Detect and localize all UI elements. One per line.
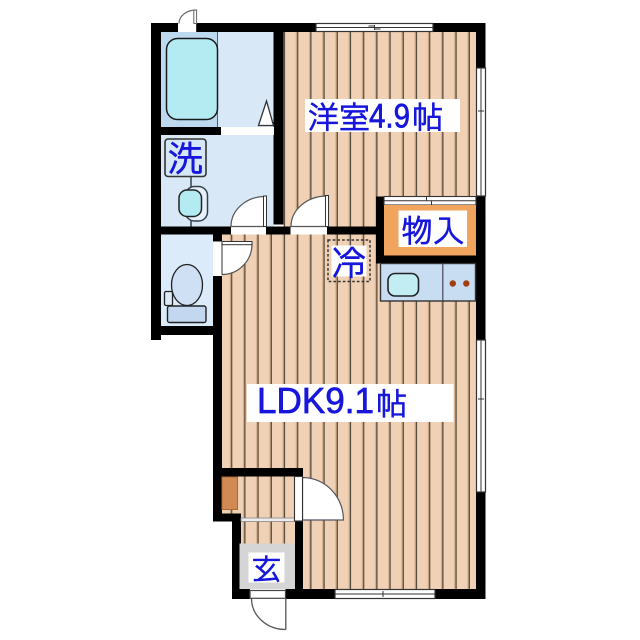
svg-text:4.9: 4.9 [369,98,410,136]
svg-text:LDK9.1: LDK9.1 [257,380,374,421]
